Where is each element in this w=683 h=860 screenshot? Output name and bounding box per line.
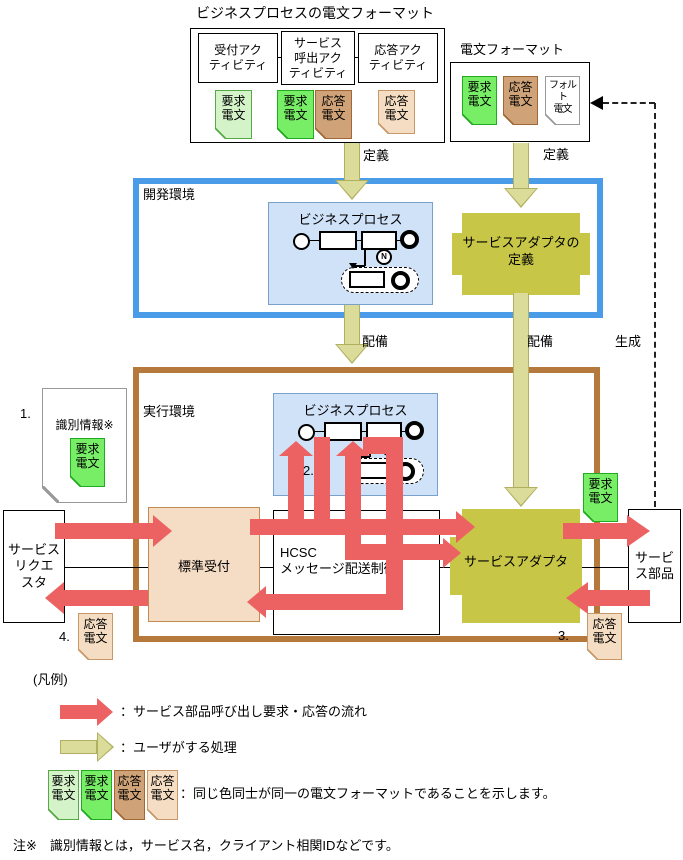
deploy-arrowhead-right-icon [504,487,538,507]
step-1-label: 1. [20,406,31,422]
deploy-arrow-right [513,293,529,487]
doc-fold-icon [277,128,288,139]
flow-arrowhead-icon [153,515,172,547]
flow-arrowhead-icon [443,538,461,568]
define-label-right: 定義 [543,147,569,163]
doc-request-green: 要求 電文 [583,473,618,522]
doc-fold-icon [587,649,598,660]
activity-connector [278,57,281,58]
doc-label: 応答 電文 [508,80,532,108]
bpmn-n-badge-icon: N [376,249,392,265]
exec-bp-title: ビジネスプロセス [274,400,437,419]
step-4-label: 4. [59,629,70,645]
flow-component-to-adapter [588,590,650,606]
doc-response-tan: 応答 電文 [78,613,113,660]
deploy-label-left: 配備 [362,334,388,350]
doc-label: 要求 電文 [221,94,245,122]
doc-label: 応答 電文 [384,94,408,122]
bpmn-start-event-icon [293,233,310,250]
generate-arrowhead-icon [590,96,603,110]
doc-label: 要求 電文 [467,80,491,108]
bpmn-line [308,240,319,241]
msg-format-title: 電文フォーマット [460,42,564,58]
bp-format-title: ビジネスプロセスの電文フォーマット [196,5,434,22]
flow-return-to-reception [266,594,403,610]
doc-label: 要求 電文 [588,477,612,505]
flow-reception-to-requester [64,590,148,606]
doc-response-tan: 応答 電文 [378,90,415,134]
define-arrow-left [344,143,360,180]
diagram-canvas: ビジネスプロセスの電文フォーマット 受付アク ティビティ サービス 呼出アク テ… [0,0,683,860]
doc-fold-icon [315,128,326,139]
doc-fold-icon [147,809,158,820]
doc-request-green: 要求 電文 [277,90,314,139]
legend-red-arrowhead-icon [97,698,113,726]
doc-label: 応答 電文 [150,774,174,802]
doc-fold-icon [70,476,81,487]
doc-response-tan: 応答 電文 [587,613,622,660]
define-arrowhead-left-icon [335,180,369,200]
doc-label: 要求 電文 [51,774,75,802]
doc-fold-icon [81,809,92,820]
service-adapter-definition: サービスアダプタの 定義 [452,213,590,295]
define-arrowhead-right-icon [504,188,538,208]
doc-label: フォルト 電文 [549,80,576,115]
doc-fold-icon [378,123,389,134]
exec-env-label: 実行環境 [143,404,195,420]
connector-line [582,567,628,568]
activity-response: 応答アク ティビティ [358,33,438,83]
legend-yellow-arrowhead-icon [97,732,114,762]
flow-arrowhead-icon [45,582,64,614]
flow-arrowhead-icon [247,586,266,618]
bpmn-line [364,250,366,266]
doc-fault-white: フォルト 電文 [545,76,580,125]
footnote: 注※ 識別情報とは，サービス名，クライアント相関IDなどです。 [13,838,399,854]
doc-label: 応答 電文 [117,774,141,802]
activity-connector [355,57,358,58]
bpmn-start-event-icon [298,424,315,441]
doc-fold-icon [215,128,226,139]
dev-env-label: 開発環境 [143,187,195,203]
doc-label: 応答 電文 [592,617,616,645]
legend-doc-green: 要求 電文 [81,770,112,820]
doc-fold-icon [42,486,59,503]
flow-adapter-to-component [563,523,627,539]
flow-requester-to-reception [55,523,153,539]
legend-doc-light-green: 要求 電文 [48,770,79,820]
doc-fold-icon [48,809,59,820]
doc-label: 応答 電文 [83,617,107,645]
flow-bp-elbow-down [386,437,403,610]
doc-fold-icon [583,511,594,522]
legend-doc-tan: 応答 電文 [147,770,178,820]
doc-label: 要求 電文 [75,442,99,470]
doc-fold-icon [545,114,556,125]
doc-label: 要求 電文 [84,774,108,802]
bpmn-end-event-icon [400,230,419,249]
doc-fold-icon [462,114,473,125]
flow-arrowhead-icon [627,515,650,547]
legend-yellow-desc: ：ユーザがする処理 [120,740,237,756]
id-info-label: 識別情報※ [55,418,113,432]
generate-dashed-line [603,102,655,104]
generate-label: 生成 [615,334,641,350]
legend-title: (凡例) [33,672,68,688]
bpmn-task-icon [319,231,357,250]
bpmn-task-icon [349,271,385,288]
define-label-left: 定義 [363,148,389,164]
connector-line [65,567,148,568]
generate-dashed-line [654,103,656,507]
doc-response-brown: 応答 電文 [503,76,538,125]
doc-request-green: 要求 電文 [462,76,497,125]
bpmn-task-icon [361,231,397,250]
bpmn-end-event-icon [405,421,424,440]
doc-request-green: 要求 電文 [70,438,105,487]
legend-docs-desc: ：同じ色同士が同一の電文フォーマットであることを示します。 [180,786,556,802]
bpmn-arrowhead-icon [349,263,357,269]
doc-label: 応答 電文 [321,94,345,122]
dev-bp-box: ビジネスプロセス N [268,202,433,305]
flow-arrowhead-icon [279,441,313,456]
legend-doc-brown: 応答 電文 [114,770,145,820]
define-arrow-right [513,143,529,188]
doc-fold-icon [503,114,514,125]
activity-service-call: サービス 呼出アク ティビティ [281,31,355,85]
flow-arrowhead-icon [566,582,588,614]
doc-fold-icon [114,809,125,820]
deploy-arrow-left [344,305,360,344]
bpmn-line [313,431,324,432]
flow-bp-down [314,437,330,535]
legend-red-desc: ：サービス部品呼び出し要求・応答の流れ [120,704,367,720]
connector-line [260,567,273,568]
dev-bp-title: ビジネスプロセス [269,209,432,228]
legend-yellow-arrow [60,740,97,754]
activity-reception: 受付アク ティビティ [198,33,278,83]
step-3-label: 3. [558,628,569,644]
flow-up-to-bp-1 [288,456,304,535]
deploy-label-right: 配備 [527,334,553,350]
doc-label: 要求 電文 [283,94,307,122]
doc-request-light-green: 要求 電文 [215,90,252,139]
bpmn-end-event-icon [391,271,410,290]
legend-red-arrow [60,705,97,719]
doc-fold-icon [78,649,89,660]
doc-response-brown: 応答 電文 [315,90,352,139]
step-2-label: 2. [303,463,314,479]
